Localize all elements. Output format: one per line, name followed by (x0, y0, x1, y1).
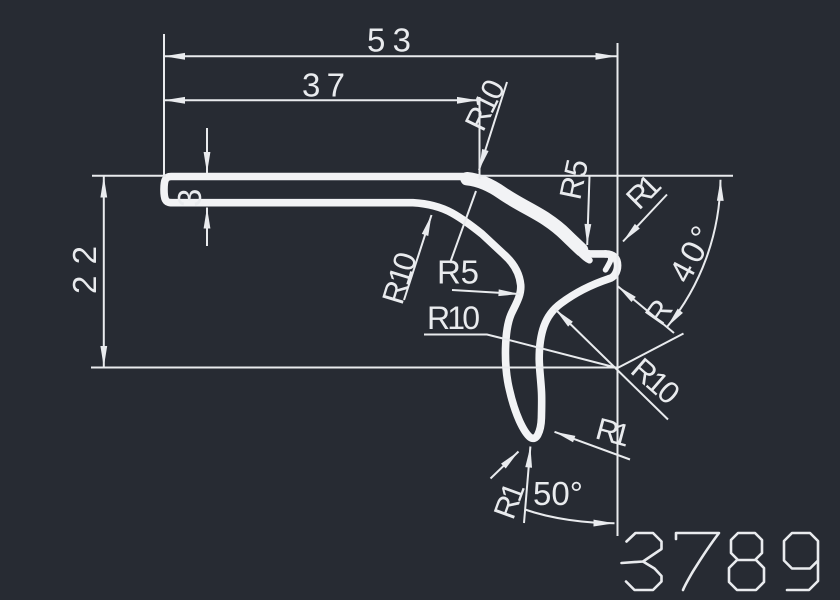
svg-text:R1: R1 (619, 167, 668, 216)
svg-text:R10: R10 (458, 74, 512, 136)
svg-text:3: 3 (171, 189, 208, 207)
svg-text:53: 53 (367, 22, 411, 59)
svg-text:40°: 40° (662, 220, 722, 289)
svg-text:R: R (638, 293, 680, 331)
svg-text:R10: R10 (375, 248, 424, 308)
svg-text:50°: 50° (533, 475, 583, 512)
svg-text:37: 37 (302, 67, 345, 104)
svg-text:R5: R5 (437, 254, 479, 291)
svg-text:22: 22 (66, 246, 103, 294)
svg-text:R10: R10 (427, 300, 480, 336)
